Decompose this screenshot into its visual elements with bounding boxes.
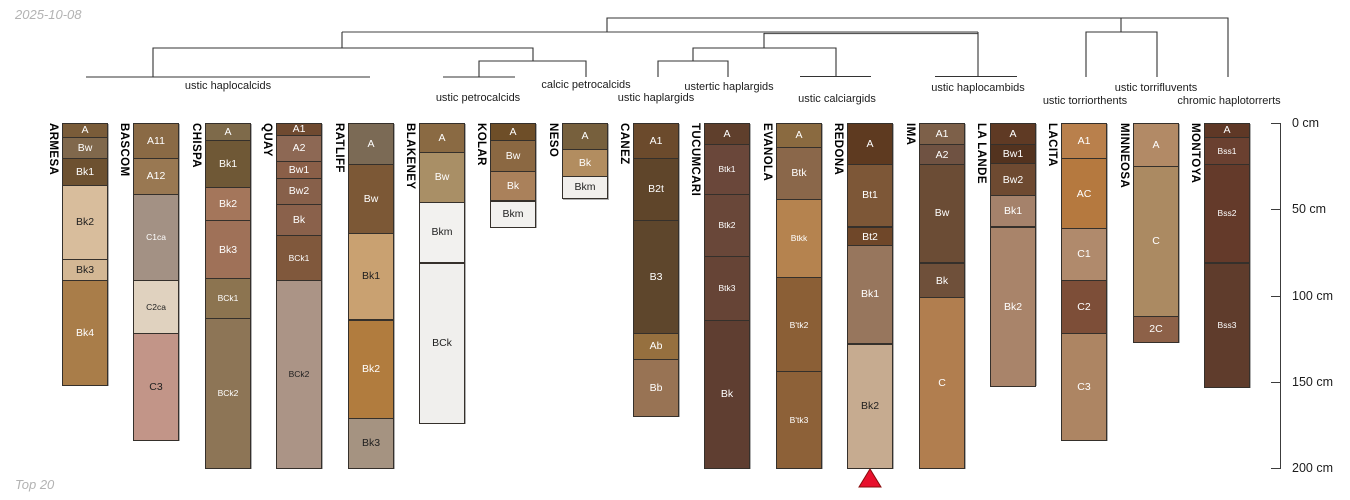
profile-column-tucumcari: ABtk1Btk2Btk3Bk	[704, 123, 750, 468]
profile-name-armesa: ARMESA	[47, 123, 59, 175]
horizon-label: Bt1	[862, 190, 878, 201]
profile-name-chispa: CHISPA	[190, 123, 202, 168]
profile-column-evanola: ABtkBtkkB'tk2B'tk3	[776, 123, 822, 468]
horizon-label: Bkm	[503, 209, 524, 220]
horizon-2c: 2C	[1133, 316, 1179, 343]
horizon-a1: A1	[633, 123, 679, 159]
horizon-label: Bk1	[861, 289, 879, 300]
profile-name-canez: CANEZ	[618, 123, 630, 165]
profile-column-lacita: A1ACC1C2C3	[1061, 123, 1107, 440]
horizon-label: A2	[936, 150, 949, 161]
horizon-label: C3	[1077, 382, 1090, 393]
horizon-a: A	[1133, 123, 1179, 167]
horizon-bck1: BCk1	[276, 235, 322, 281]
horizon-label: Bk2	[1004, 302, 1022, 313]
horizon-label: Bk	[936, 276, 948, 287]
profile-column-canez: A1B2tB3AbBb	[633, 123, 679, 416]
horizon-label: Btk1	[718, 165, 735, 174]
horizon-bw1: Bw1	[276, 161, 322, 179]
horizon-ab: Ab	[633, 333, 679, 360]
profile-name-blakeney: BLAKENEY	[404, 123, 416, 189]
horizon-a: A	[847, 123, 893, 165]
horizon-label: BCk	[432, 338, 452, 349]
horizon-bkm: Bkm	[490, 201, 536, 228]
profile-column-kolar: ABwBkBkm	[490, 123, 536, 227]
profile-column-la-lande: ABw1Bw2Bk1Bk2	[990, 123, 1036, 385]
horizon-a: A	[62, 123, 108, 138]
depth-axis-tick	[1271, 209, 1281, 210]
depth-axis-tick-label: 200 cm	[1292, 461, 1333, 475]
horizon-bk2: Bk2	[205, 187, 251, 221]
horizon-label: Bk3	[219, 245, 237, 256]
profile-name-quay: QUAY	[261, 123, 273, 157]
horizon-bk2: Bk2	[62, 185, 108, 260]
horizon-label: C2ca	[146, 303, 166, 312]
horizon-a: A	[205, 123, 251, 141]
cluster-label: ustic torrifluvents	[1115, 82, 1198, 94]
profile-name-montoya: MONTOYA	[1189, 123, 1201, 183]
horizon-label: Bkm	[432, 227, 453, 238]
horizon-bk2: Bk2	[990, 227, 1036, 387]
cluster-label: ustic calciargids	[798, 93, 876, 105]
profile-column-montoya: ABss1Bss2Bss3	[1204, 123, 1250, 387]
horizon-a1: A1	[1061, 123, 1107, 159]
horizon-label: Bk	[293, 215, 305, 226]
horizon-a: A	[348, 123, 394, 165]
horizon-bw: Bw	[419, 152, 465, 203]
horizon-bk: Bk	[490, 171, 536, 201]
profile-column-quay: A1A2Bw1Bw2BkBCk1BCk2	[276, 123, 322, 468]
profile-name-tucumcari: TUCUMCARI	[689, 123, 701, 196]
horizon-bk3: Bk3	[348, 418, 394, 469]
horizon-bk: Bk	[704, 320, 750, 469]
horizon-bw: Bw	[490, 140, 536, 172]
horizon-label: Bw2	[289, 186, 309, 197]
horizon-bt1: Bt1	[847, 164, 893, 227]
horizon-bck: BCk	[419, 263, 465, 424]
profile-column-chispa: ABk1Bk2Bk3BCk1BCk2	[205, 123, 251, 468]
profile-name-la-lande: LA LANDE	[975, 123, 987, 184]
horizon-label: B'tk3	[790, 416, 809, 425]
horizon-bw: Bw	[348, 164, 394, 234]
depth-axis-tick-label: 50 cm	[1292, 202, 1326, 216]
horizon-label: Bk	[507, 181, 519, 192]
horizon-c2: C2	[1061, 280, 1107, 334]
horizon-bkm: Bkm	[562, 176, 608, 199]
horizon-label: B3	[650, 272, 663, 283]
horizon-bk1: Bk1	[990, 195, 1036, 227]
horizon-label: A	[1152, 140, 1159, 151]
horizon-bk1: Bk1	[62, 158, 108, 187]
depth-axis-tick	[1271, 382, 1281, 383]
horizon-label: C	[938, 378, 946, 389]
horizon-b3: B3	[633, 220, 679, 335]
horizon-label: A1	[650, 136, 663, 147]
horizon-btk3: Btk3	[704, 256, 750, 321]
horizon-label: Btkk	[791, 234, 808, 243]
profile-name-bascom: BASCOM	[118, 123, 130, 177]
cluster-label: ustic haplargids	[618, 92, 694, 104]
horizon-label: C1ca	[146, 233, 166, 242]
horizon-label: Bk	[579, 158, 591, 169]
horizon-a: A	[704, 123, 750, 145]
horizon-label: Bw1	[289, 165, 309, 176]
horizon-btkk: Btkk	[776, 199, 822, 278]
profile-name-redona: REDONA	[832, 123, 844, 175]
dendrogram-links	[86, 18, 1228, 77]
horizon-label: A2	[293, 143, 306, 154]
horizon-bk2: Bk2	[348, 320, 394, 419]
depth-axis-tick	[1271, 296, 1281, 297]
cluster-label: ustertic haplargids	[684, 81, 773, 93]
profile-column-ratliff: ABwBk1Bk2Bk3	[348, 123, 394, 468]
profile-name-ratliff: RATLIFF	[333, 123, 345, 173]
horizon-label: A12	[147, 171, 166, 182]
horizon-label: A	[438, 133, 445, 144]
horizon-label: Bw	[935, 208, 950, 219]
horizon-bw1: Bw1	[990, 144, 1036, 164]
profile-name-ima: IMA	[904, 123, 916, 145]
horizon-a11: A11	[133, 123, 179, 159]
horizon-bk2: Bk2	[847, 344, 893, 469]
horizon-label: A	[581, 131, 588, 142]
horizon-bk3: Bk3	[62, 259, 108, 281]
horizon-label: Bw	[506, 151, 521, 162]
horizon-label: Bss2	[1218, 209, 1237, 218]
soil-profile-dendrogram-chart: 2025-10-08 Top 20 ustic haplocalcidsusti…	[0, 0, 1350, 500]
horizon-label: Bk4	[76, 328, 94, 339]
horizon-label: Btk	[791, 168, 806, 179]
horizon-c1: C1	[1061, 228, 1107, 281]
horizon-label: Bk1	[76, 167, 94, 178]
horizon-label: BCk2	[218, 389, 239, 398]
horizon-bw2: Bw2	[990, 163, 1036, 197]
horizon-c3: C3	[133, 333, 179, 441]
horizon-label: Bss3	[1218, 321, 1237, 330]
horizon-a1: A1	[919, 123, 965, 145]
horizon-label: Bw	[435, 172, 450, 183]
horizon-label: Bk1	[1004, 206, 1022, 217]
horizon-label: B'tk2	[790, 321, 809, 330]
horizon-bk4: Bk4	[62, 280, 108, 386]
cluster-label: calcic petrocalcids	[541, 79, 630, 91]
horizon-a: A	[490, 123, 536, 141]
horizon-label: Btk3	[718, 284, 735, 293]
profile-name-neso: NESO	[547, 123, 559, 157]
horizon-c3: C3	[1061, 333, 1107, 441]
horizon-label: Bt2	[862, 232, 878, 243]
cluster-label: ustic torriorthents	[1043, 95, 1127, 107]
cluster-label: ustic petrocalcids	[436, 92, 520, 104]
horizon-label: A1	[293, 124, 306, 135]
depth-axis-tick	[1271, 468, 1281, 469]
horizon-label: AC	[1077, 189, 1092, 200]
horizon-bw: Bw	[62, 137, 108, 159]
horizon-bk3: Bk3	[205, 220, 251, 280]
horizon-a: A	[1204, 123, 1250, 138]
profile-name-lacita: LACITA	[1046, 123, 1058, 167]
profile-column-redona: ABt1Bt2Bk1Bk2	[847, 123, 893, 468]
horizon-label: A	[224, 127, 231, 138]
horizon-c2ca: C2ca	[133, 280, 179, 334]
horizon-c: C	[919, 297, 965, 469]
horizon-label: A	[367, 139, 374, 150]
horizon-c: C	[1133, 166, 1179, 317]
horizon-a: A	[990, 123, 1036, 145]
horizon-label: Bss1	[1218, 147, 1237, 156]
horizon-bk1: Bk1	[205, 140, 251, 188]
horizon-bck2: BCk2	[205, 318, 251, 469]
horizon-label: Bk3	[76, 265, 94, 276]
horizon-bk: Bk	[276, 204, 322, 236]
horizon-b'tk3: B'tk3	[776, 371, 822, 469]
horizon-label: A	[509, 127, 516, 138]
horizon-btk1: Btk1	[704, 144, 750, 195]
depth-axis-tick	[1271, 123, 1281, 124]
horizon-bk1: Bk1	[847, 245, 893, 344]
horizon-bk: Bk	[919, 263, 965, 299]
horizon-bkm: Bkm	[419, 202, 465, 263]
horizon-label: C2	[1077, 302, 1090, 313]
horizon-bw: Bw	[919, 164, 965, 263]
horizon-bb: Bb	[633, 359, 679, 417]
horizon-label: BCk1	[218, 294, 239, 303]
horizon-a: A	[419, 123, 465, 153]
horizon-label: Bb	[650, 383, 663, 394]
horizon-bck2: BCk2	[276, 280, 322, 469]
horizon-label: Bk1	[219, 159, 237, 170]
horizon-label: C1	[1077, 249, 1090, 260]
horizon-label: Bw	[364, 194, 379, 205]
horizon-bw2: Bw2	[276, 178, 322, 205]
horizon-label: Btk2	[718, 221, 735, 230]
horizon-label: B2t	[648, 184, 664, 195]
horizon-btk2: Btk2	[704, 194, 750, 257]
depth-axis-tick-label: 0 cm	[1292, 116, 1319, 130]
horizon-a2: A2	[276, 135, 322, 162]
cluster-label: ustic haplocambids	[931, 82, 1025, 94]
horizon-label: BCk2	[289, 370, 310, 379]
horizon-label: Bk2	[219, 199, 237, 210]
horizon-label: BCk1	[289, 254, 310, 263]
horizon-label: 2C	[1149, 324, 1162, 335]
horizon-bss2: Bss2	[1204, 164, 1250, 263]
horizon-label: Bkm	[575, 182, 596, 193]
cluster-label: chromic haplotorrerts	[1177, 95, 1280, 107]
profile-name-kolar: KOLAR	[475, 123, 487, 166]
horizon-label: A	[1009, 129, 1016, 140]
horizon-label: Bk	[721, 389, 733, 400]
horizon-bss3: Bss3	[1204, 263, 1250, 388]
redona-marker-icon	[859, 469, 881, 487]
horizon-a2: A2	[919, 144, 965, 166]
horizon-label: Bw2	[1003, 175, 1023, 186]
horizon-label: Bw	[78, 143, 93, 154]
horizon-a12: A12	[133, 158, 179, 195]
horizon-label: A11	[147, 136, 165, 147]
profile-column-minneosa: AC2C	[1133, 123, 1179, 342]
horizon-label: Bk2	[362, 364, 380, 375]
horizon-label: Bk3	[362, 438, 380, 449]
profile-column-neso: ABkBkm	[562, 123, 608, 199]
horizon-b2t: B2t	[633, 158, 679, 221]
horizon-a: A	[776, 123, 822, 148]
horizon-label: A1	[936, 129, 949, 140]
horizon-btk: Btk	[776, 147, 822, 200]
horizon-label: A	[1223, 125, 1230, 136]
horizon-label: Ab	[650, 341, 663, 352]
horizon-label: Bk1	[362, 271, 380, 282]
horizon-label: A	[866, 139, 873, 150]
horizon-label: A	[81, 125, 88, 136]
horizon-c1ca: C1ca	[133, 194, 179, 281]
horizon-label: C3	[149, 382, 162, 393]
horizon-label: Bk2	[861, 401, 879, 412]
profile-column-bascom: A11A12C1caC2caC3	[133, 123, 179, 440]
depth-axis-tick-label: 150 cm	[1292, 375, 1333, 389]
horizon-bck1: BCk1	[205, 278, 251, 319]
depth-axis-tick-label: 100 cm	[1292, 289, 1333, 303]
horizon-bk1: Bk1	[348, 233, 394, 320]
profile-column-ima: A1A2BwBkC	[919, 123, 965, 468]
horizon-b'tk2: B'tk2	[776, 277, 822, 373]
profile-column-blakeney: ABwBkmBCk	[419, 123, 465, 423]
profile-name-evanola: EVANOLA	[761, 123, 773, 181]
horizon-ac: AC	[1061, 158, 1107, 230]
profile-column-armesa: ABwBk1Bk2Bk3Bk4	[62, 123, 108, 385]
horizon-bss1: Bss1	[1204, 137, 1250, 166]
horizon-a: A	[562, 123, 608, 150]
cluster-label: ustic haplocalcids	[185, 80, 271, 92]
horizon-bk: Bk	[562, 149, 608, 178]
horizon-bt2: Bt2	[847, 227, 893, 247]
horizon-label: C	[1152, 236, 1160, 247]
horizon-label: Bk2	[76, 217, 94, 228]
horizon-label: A	[723, 129, 730, 140]
horizon-label: Bw1	[1003, 149, 1023, 160]
horizon-label: A1	[1078, 136, 1091, 147]
profile-name-minneosa: MINNEOSA	[1118, 123, 1130, 188]
horizon-label: A	[795, 130, 802, 141]
